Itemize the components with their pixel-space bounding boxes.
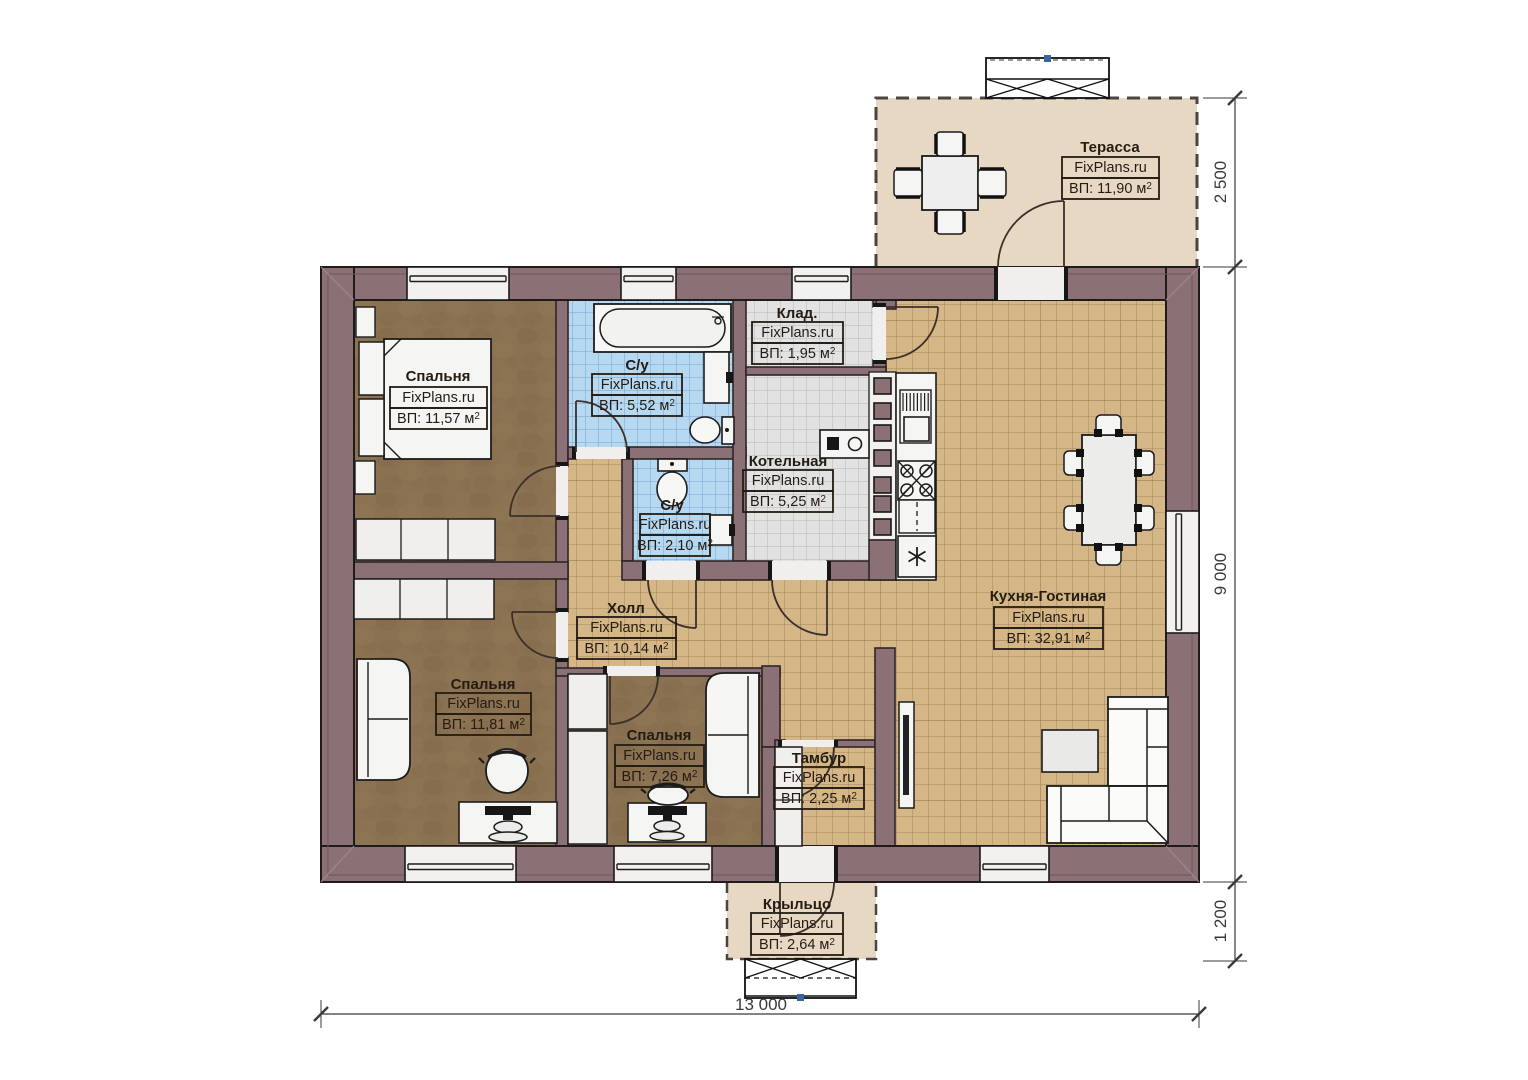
svg-text:ВП: 2,25 м2: ВП: 2,25 м2 [781, 791, 857, 807]
svg-text:Кухня-Гостиная: Кухня-Гостиная [990, 588, 1107, 605]
svg-text:ВП: 5,52 м2: ВП: 5,52 м2 [599, 398, 675, 414]
svg-text:С/у: С/у [660, 497, 684, 514]
svg-text:ВП: 2,10 м2: ВП: 2,10 м2 [637, 538, 713, 554]
svg-text:FixPlans.ru: FixPlans.ru [447, 696, 520, 712]
svg-text:FixPlans.ru: FixPlans.ru [639, 517, 712, 533]
svg-text:Спальня: Спальня [451, 676, 516, 693]
svg-text:FixPlans.ru: FixPlans.ru [761, 916, 834, 932]
svg-text:FixPlans.ru: FixPlans.ru [601, 377, 674, 393]
svg-text:FixPlans.ru: FixPlans.ru [1074, 160, 1147, 176]
svg-text:Спальня: Спальня [406, 368, 471, 385]
svg-text:ВП: 2,64 м2: ВП: 2,64 м2 [759, 937, 835, 953]
svg-text:Холл: Холл [607, 600, 645, 617]
svg-text:ВП: 11,57 м2: ВП: 11,57 м2 [397, 411, 480, 427]
svg-text:Котельная: Котельная [749, 453, 828, 470]
svg-text:Терасса: Терасса [1080, 139, 1140, 156]
svg-text:С/у: С/у [625, 357, 649, 374]
svg-text:FixPlans.ru: FixPlans.ru [752, 473, 825, 489]
svg-text:ВП: 7,26 м2: ВП: 7,26 м2 [622, 769, 698, 785]
svg-text:FixPlans.ru: FixPlans.ru [623, 748, 696, 764]
svg-text:ВП: 11,81 м2: ВП: 11,81 м2 [442, 717, 525, 733]
svg-text:FixPlans.ru: FixPlans.ru [402, 390, 475, 406]
svg-text:ВП: 10,14 м2: ВП: 10,14 м2 [585, 641, 669, 657]
svg-text:9 000: 9 000 [1211, 553, 1230, 596]
svg-text:FixPlans.ru: FixPlans.ru [1012, 610, 1085, 626]
svg-text:1 200: 1 200 [1211, 900, 1230, 943]
svg-text:ВП: 1,95 м2: ВП: 1,95 м2 [760, 346, 836, 362]
svg-text:ВП: 5,25 м2: ВП: 5,25 м2 [750, 494, 826, 510]
svg-text:Клад.: Клад. [777, 305, 818, 322]
svg-text:ВП: 32,91 м2: ВП: 32,91 м2 [1007, 631, 1091, 647]
svg-text:FixPlans.ru: FixPlans.ru [590, 620, 663, 636]
svg-text:ВП: 11,90 м2: ВП: 11,90 м2 [1069, 181, 1152, 197]
svg-text:Тамбур: Тамбур [792, 750, 846, 767]
svg-text:FixPlans.ru: FixPlans.ru [783, 770, 856, 786]
svg-text:Спальня: Спальня [627, 727, 692, 744]
svg-text:Крыльцо: Крыльцо [763, 896, 831, 913]
svg-text:13 000: 13 000 [735, 995, 787, 1014]
svg-text:FixPlans.ru: FixPlans.ru [761, 325, 834, 341]
svg-text:2 500: 2 500 [1211, 161, 1230, 204]
